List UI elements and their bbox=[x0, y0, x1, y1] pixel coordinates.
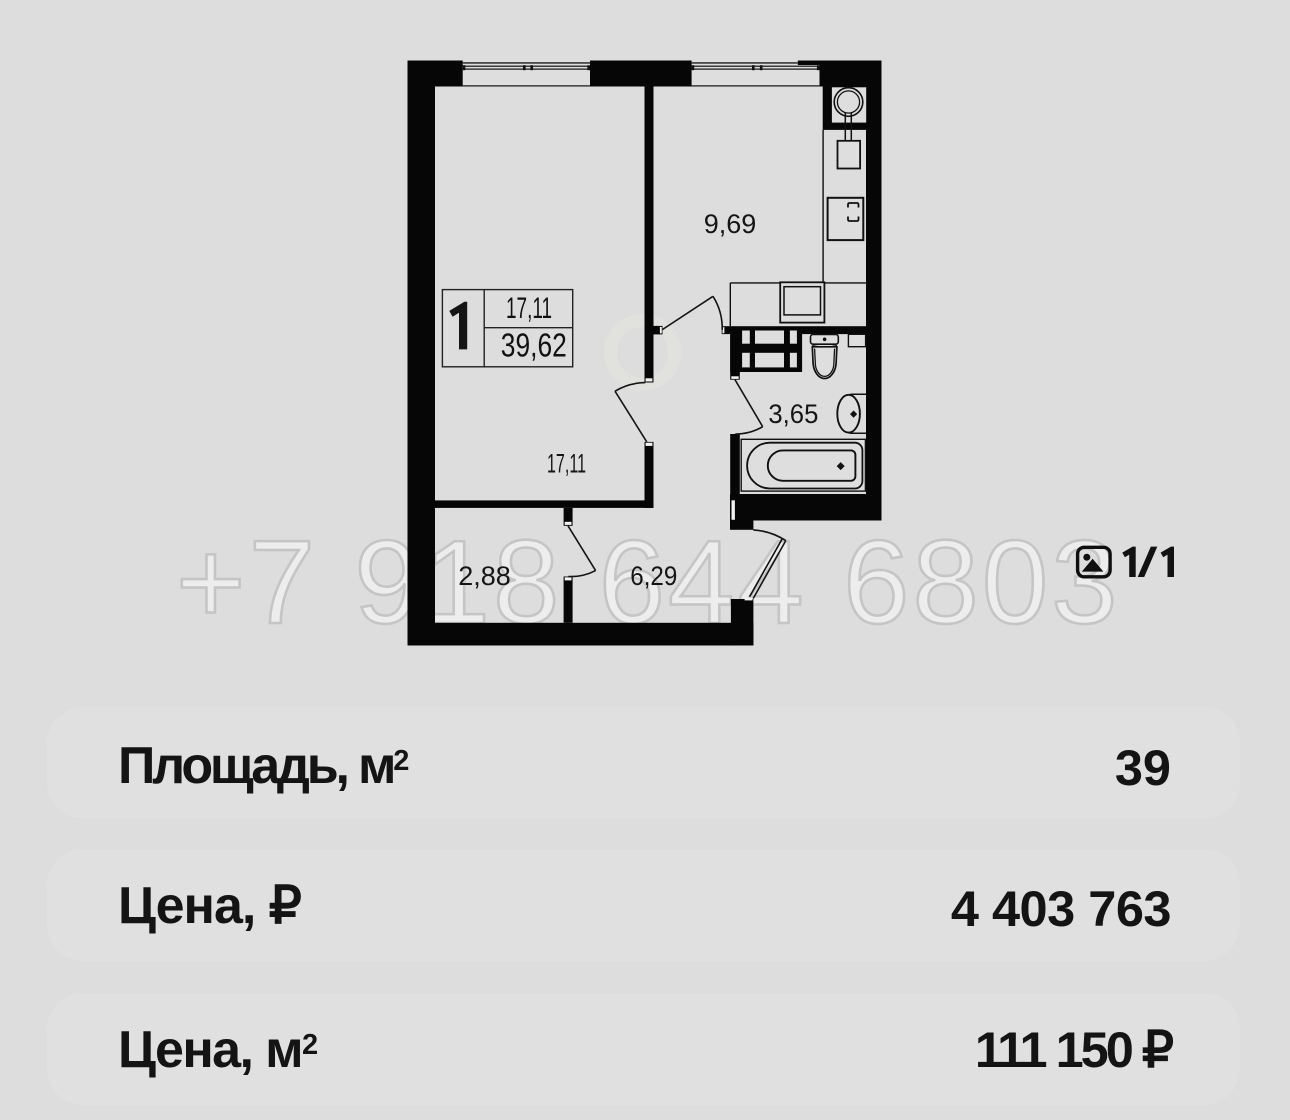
svg-text:6,29: 6,29 bbox=[630, 561, 677, 591]
svg-text:2,88: 2,88 bbox=[458, 561, 511, 591]
svg-text:17,11: 17,11 bbox=[506, 292, 552, 325]
svg-text:17,11: 17,11 bbox=[547, 449, 586, 479]
svg-text:3,65: 3,65 bbox=[768, 399, 818, 429]
svg-text:9,69: 9,69 bbox=[704, 209, 757, 239]
svg-text:39,62: 39,62 bbox=[501, 327, 567, 364]
